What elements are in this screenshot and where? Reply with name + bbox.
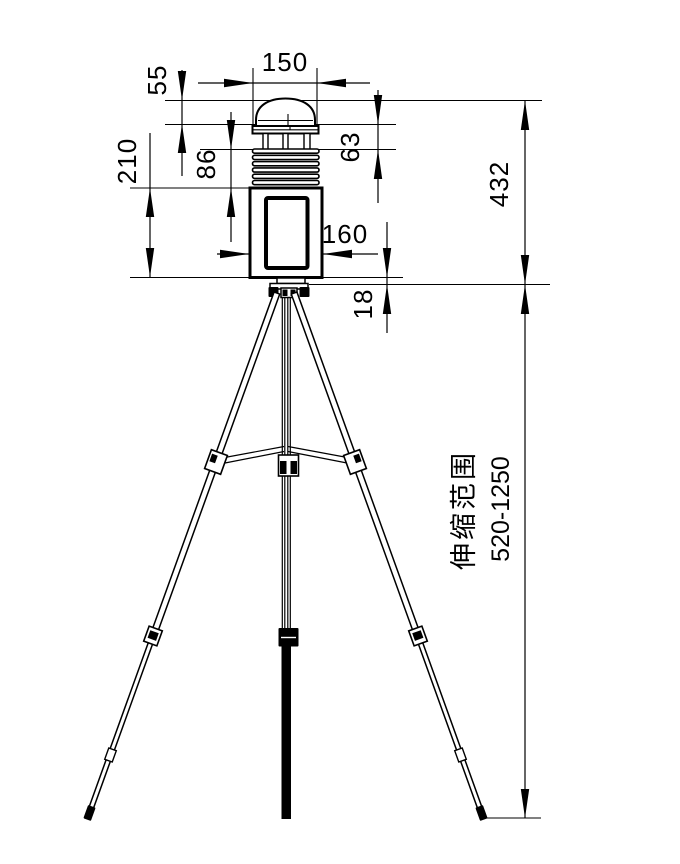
drawing-canvas: 150 55 210 86 63 160 18: [0, 0, 680, 864]
leg-tube: [86, 635, 155, 817]
arrowhead-icon: [374, 95, 382, 125]
dim-text-telescopic-label: 伸缩范围: [449, 450, 479, 570]
column-clamp-bolt: [291, 461, 298, 474]
dim-text-cap-width: 150: [262, 47, 308, 77]
leg-clamp-left: [205, 450, 228, 475]
leg-joint-right: [409, 626, 428, 646]
tripod: [83, 284, 487, 821]
arrowhead-icon: [323, 250, 352, 258]
leg-tube: [416, 635, 485, 817]
support-post: [283, 134, 288, 150]
leg-right-lower: [416, 635, 485, 817]
dim-text-body-height: 210: [112, 138, 142, 184]
arrowhead-icon: [521, 255, 529, 285]
dim-text-station-height: 432: [484, 161, 514, 207]
dim-text-louver-height: 86: [191, 149, 221, 180]
dimension-drawing: 150 55 210 86 63 160 18: [0, 0, 680, 864]
dim-post-height: 63: [335, 90, 382, 203]
foot-right: [475, 805, 487, 821]
arrowhead-icon: [146, 248, 154, 277]
sleeve-body: [455, 748, 467, 762]
arrowhead-icon: [178, 124, 186, 153]
foot-cap: [475, 805, 487, 821]
louver-fin: [253, 174, 320, 178]
arrowhead-icon: [521, 285, 529, 315]
arrowhead-icon: [227, 120, 235, 150]
arrowhead-icon: [224, 79, 253, 87]
column-lower-solid: [282, 646, 292, 819]
arrowhead-icon: [317, 79, 346, 87]
foot-left: [83, 805, 95, 821]
dim-text-post-height: 63: [335, 132, 365, 163]
head-bolt: [283, 290, 288, 297]
arrowhead-icon: [521, 101, 529, 131]
leg-clamp-right: [344, 450, 367, 475]
dim-text-telescopic-range: 520-1250: [487, 456, 515, 562]
arrowhead-icon: [383, 285, 391, 315]
arrowhead-icon: [374, 150, 382, 180]
dim-body-height: 210: [112, 133, 154, 277]
brace-left: [225, 452, 284, 464]
brace-left: [222, 447, 284, 459]
arrowhead-icon: [383, 248, 391, 278]
body-window: [266, 198, 308, 268]
dim-dome-height: 55: [142, 65, 186, 176]
dim-louver-height: 86: [191, 112, 235, 242]
dim-text-mount-gap: 18: [348, 289, 378, 320]
clamp-body: [205, 450, 228, 475]
support-post: [304, 134, 310, 150]
dim-telescopic-range: 伸缩范围 520-1250: [449, 285, 529, 819]
arrowhead-icon: [146, 188, 154, 217]
dim-text-dome-height: 55: [142, 65, 172, 96]
arrowhead-icon: [227, 188, 235, 217]
leg-left-lower: [86, 635, 155, 817]
leg-sleeve-right: [455, 748, 467, 762]
louver-fin: [253, 168, 320, 172]
arrowhead-icon: [521, 789, 529, 818]
sensor-dome: [256, 99, 315, 127]
dim-cap-width: 150: [198, 47, 370, 87]
clamp-body: [344, 450, 367, 475]
arrowhead-icon: [178, 71, 186, 100]
louver-fin: [253, 162, 320, 166]
mount-plate: [277, 278, 305, 284]
leg-sleeve-left: [105, 748, 117, 762]
weather-sensor-unit: [250, 99, 322, 284]
louver-fin: [253, 155, 320, 159]
column-clamp-bolt: [280, 461, 287, 474]
dim-text-body-width: 160: [322, 219, 368, 249]
louver-fin: [253, 181, 320, 185]
arrowhead-icon: [220, 250, 249, 258]
foot-cap: [83, 805, 95, 821]
sleeve-body: [105, 748, 117, 762]
center-column: [279, 298, 299, 820]
dim-station-height: 432: [484, 101, 529, 285]
head-lug-right: [300, 287, 310, 297]
louver-stack: [253, 149, 320, 185]
leg-joint-left: [144, 626, 163, 646]
support-post: [263, 134, 268, 150]
louver-fin: [253, 149, 320, 153]
